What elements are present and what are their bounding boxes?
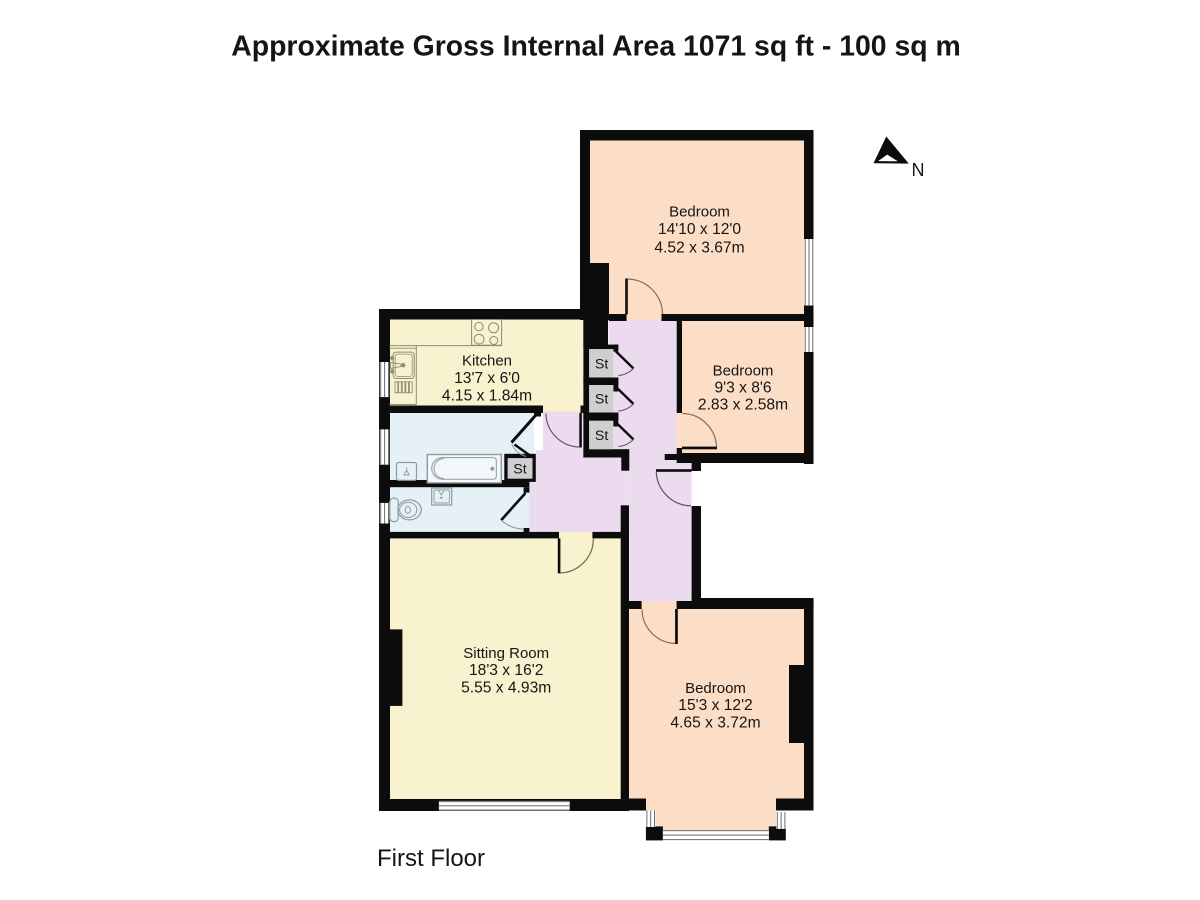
svg-text:N: N — [912, 160, 925, 180]
svg-text:5.55 x 4.93m: 5.55 x 4.93m — [461, 679, 551, 696]
svg-text:14'10 x 12'0: 14'10 x 12'0 — [658, 221, 741, 238]
svg-text:4.15 x 1.84m: 4.15 x 1.84m — [442, 387, 532, 404]
svg-text:18'3 x 16'2: 18'3 x 16'2 — [469, 662, 543, 679]
svg-text:Bedroom: Bedroom — [713, 362, 774, 379]
svg-text:2.83 x 2.58m: 2.83 x 2.58m — [698, 397, 788, 414]
svg-text:Bedroom: Bedroom — [685, 680, 746, 697]
svg-text:St: St — [513, 461, 526, 477]
svg-text:Approximate Gross Internal Are: Approximate Gross Internal Area 1071 sq … — [231, 31, 960, 63]
svg-text:15'3 x 12'2: 15'3 x 12'2 — [678, 697, 752, 714]
svg-text:4.65 x 3.72m: 4.65 x 3.72m — [670, 714, 760, 731]
svg-text:First Floor: First Floor — [377, 845, 485, 872]
svg-text:13'7 x 6'0: 13'7 x 6'0 — [454, 370, 520, 387]
svg-text:9'3 x 8'6: 9'3 x 8'6 — [714, 379, 771, 396]
svg-text:Kitchen: Kitchen — [462, 353, 512, 370]
svg-text:4.52 x 3.67m: 4.52 x 3.67m — [654, 240, 744, 257]
svg-text:St: St — [595, 356, 608, 372]
svg-text:St: St — [595, 392, 608, 408]
svg-text:St: St — [595, 428, 608, 444]
svg-text:Sitting Room: Sitting Room — [463, 645, 549, 662]
svg-text:Bedroom: Bedroom — [669, 203, 730, 220]
